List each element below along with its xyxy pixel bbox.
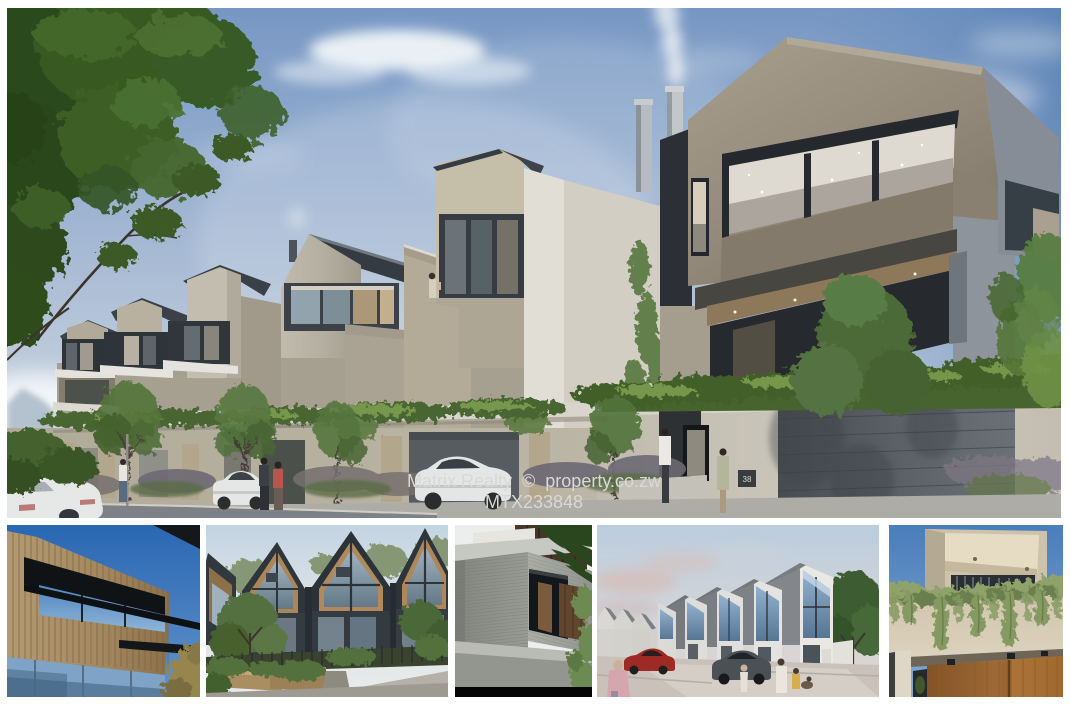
svg-text:38: 38 (743, 475, 752, 484)
svg-text:Matrix Realty © property.co.: Matrix Realty © property.co.zw (407, 471, 662, 491)
svg-text:MTX233848: MTX233848 (485, 492, 583, 512)
